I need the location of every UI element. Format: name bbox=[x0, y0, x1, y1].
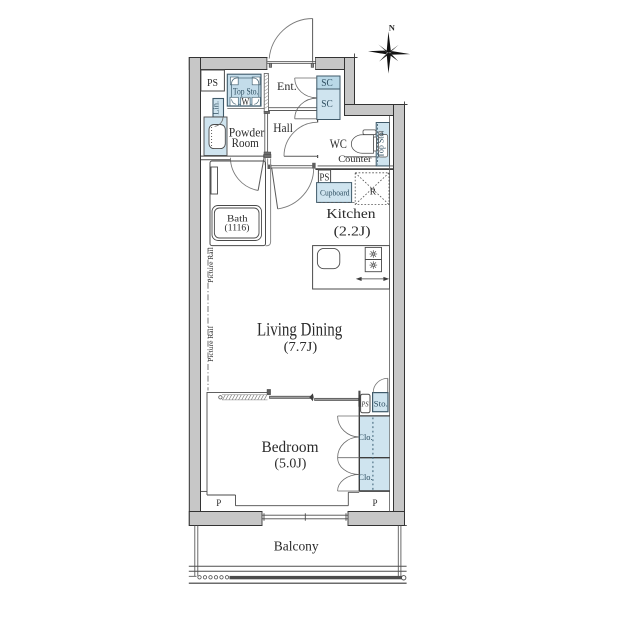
svg-text:Bath: Bath bbox=[227, 213, 248, 223]
svg-text:Cupboard: Cupboard bbox=[320, 188, 350, 197]
svg-text:(5.0J): (5.0J) bbox=[274, 457, 306, 472]
svg-text:Lin.: Lin. bbox=[211, 101, 221, 115]
svg-text:W: W bbox=[242, 97, 250, 108]
svg-text:P: P bbox=[372, 498, 377, 508]
svg-text:Kitchen: Kitchen bbox=[326, 207, 375, 222]
svg-text:WC: WC bbox=[330, 136, 347, 151]
svg-text:Balcony: Balcony bbox=[274, 539, 319, 554]
svg-text:N: N bbox=[389, 22, 396, 32]
svg-text:Clo.: Clo. bbox=[358, 432, 372, 442]
svg-text:Clo.: Clo. bbox=[358, 472, 372, 482]
svg-text:SC: SC bbox=[321, 98, 333, 110]
svg-text:SC: SC bbox=[321, 77, 333, 89]
svg-text:Top Sto.: Top Sto. bbox=[233, 86, 259, 96]
svg-text:PS: PS bbox=[319, 172, 329, 183]
svg-text:R: R bbox=[370, 187, 377, 197]
svg-text:PS: PS bbox=[207, 77, 218, 89]
svg-text:Picture Rail: Picture Rail bbox=[206, 247, 215, 283]
svg-text:PS: PS bbox=[361, 399, 369, 408]
svg-text:(2.2J): (2.2J) bbox=[334, 224, 371, 239]
svg-text:Sto.: Sto. bbox=[374, 398, 388, 408]
svg-text:P: P bbox=[216, 498, 221, 508]
svg-text:Ent.: Ent. bbox=[277, 79, 297, 93]
svg-text:(1116): (1116) bbox=[225, 223, 250, 234]
svg-text:Picture Rail: Picture Rail bbox=[206, 326, 215, 362]
svg-text:Top Sto.: Top Sto. bbox=[377, 131, 386, 158]
svg-text:Room: Room bbox=[232, 135, 259, 150]
svg-text:Bedroom: Bedroom bbox=[262, 439, 320, 456]
svg-text:Counter: Counter bbox=[338, 155, 372, 165]
svg-text:Living Dining: Living Dining bbox=[257, 320, 342, 341]
svg-text:Hall: Hall bbox=[273, 121, 293, 135]
svg-text:(7.7J): (7.7J) bbox=[284, 339, 318, 355]
